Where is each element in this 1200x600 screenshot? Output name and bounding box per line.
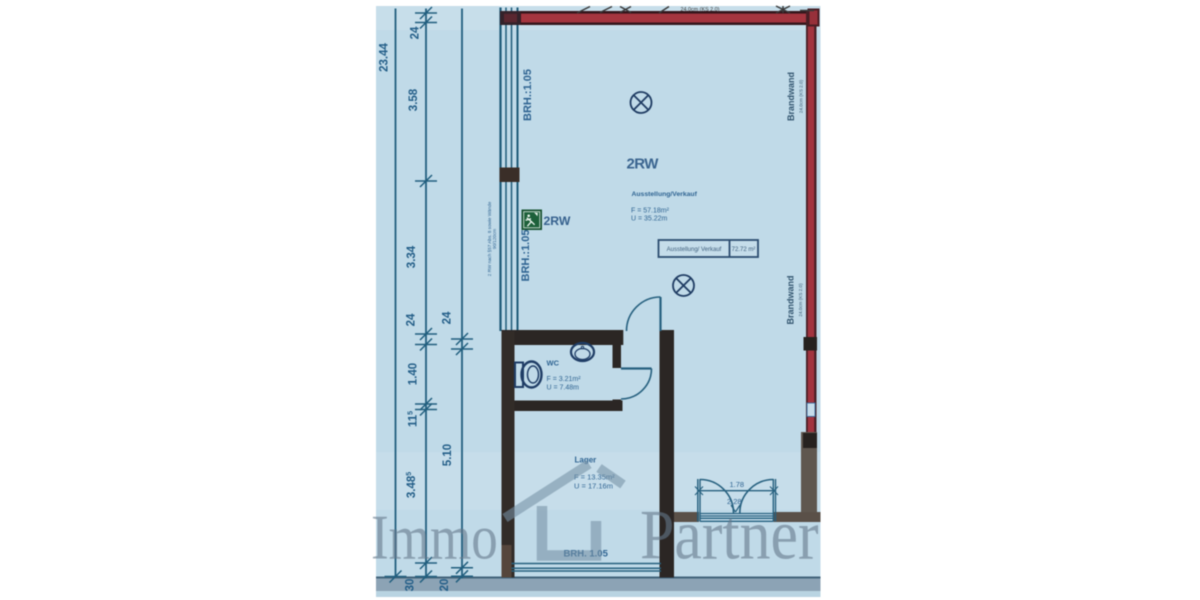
svg-text:20: 20 bbox=[439, 579, 451, 592]
svg-text:3.34: 3.34 bbox=[406, 245, 418, 268]
svg-text:Partner: Partner bbox=[640, 497, 819, 575]
svg-text:WC: WC bbox=[547, 359, 560, 368]
svg-text:BRH.:1.05: BRH.:1.05 bbox=[522, 69, 534, 121]
svg-text:24: 24 bbox=[442, 311, 454, 324]
svg-text:1.78: 1.78 bbox=[730, 480, 745, 489]
svg-text:Brandwand: Brandwand bbox=[786, 275, 796, 324]
svg-text:24.0cm (KS 2.0): 24.0cm (KS 2.0) bbox=[798, 283, 803, 317]
svg-text:24.0cm (KS 2.0): 24.0cm (KS 2.0) bbox=[681, 7, 720, 13]
svg-text:BRH.:1.05: BRH.:1.05 bbox=[520, 230, 532, 282]
svg-text:Ausstellung/Verkauf: Ausstellung/Verkauf bbox=[632, 191, 698, 198]
svg-text:2RW: 2RW bbox=[544, 214, 571, 228]
svg-text:24: 24 bbox=[410, 26, 422, 39]
svg-text:F = 57.18m²: F = 57.18m² bbox=[631, 208, 670, 215]
svg-text:U = 17.16m: U = 17.16m bbox=[574, 482, 613, 491]
svg-text:Ausstellung/ Verkauf: Ausstellung/ Verkauf bbox=[667, 247, 722, 253]
svg-text:U = 7.48m: U = 7.48m bbox=[547, 385, 580, 392]
svg-text:3.58: 3.58 bbox=[408, 88, 420, 111]
svg-text:23.44: 23.44 bbox=[379, 43, 391, 72]
svg-text:90/120cm: 90/120cm bbox=[492, 229, 497, 249]
svg-text:5.10: 5.10 bbox=[442, 444, 454, 466]
svg-text:2RW: 2RW bbox=[627, 156, 660, 173]
svg-text:Brandwand: Brandwand bbox=[786, 72, 796, 121]
svg-text:U = 35.22m: U = 35.22m bbox=[631, 216, 668, 223]
svg-text:24.0cm (KS 2.0): 24.0cm (KS 2.0) bbox=[799, 79, 804, 113]
svg-text:24: 24 bbox=[406, 313, 418, 326]
svg-text:72.72 m²: 72.72 m² bbox=[732, 247, 756, 253]
svg-text:Immo: Immo bbox=[371, 502, 498, 573]
svg-text:1.40: 1.40 bbox=[408, 363, 420, 385]
svg-text:F = 3.21m²: F = 3.21m² bbox=[547, 376, 582, 383]
svg-text:30: 30 bbox=[405, 579, 417, 592]
